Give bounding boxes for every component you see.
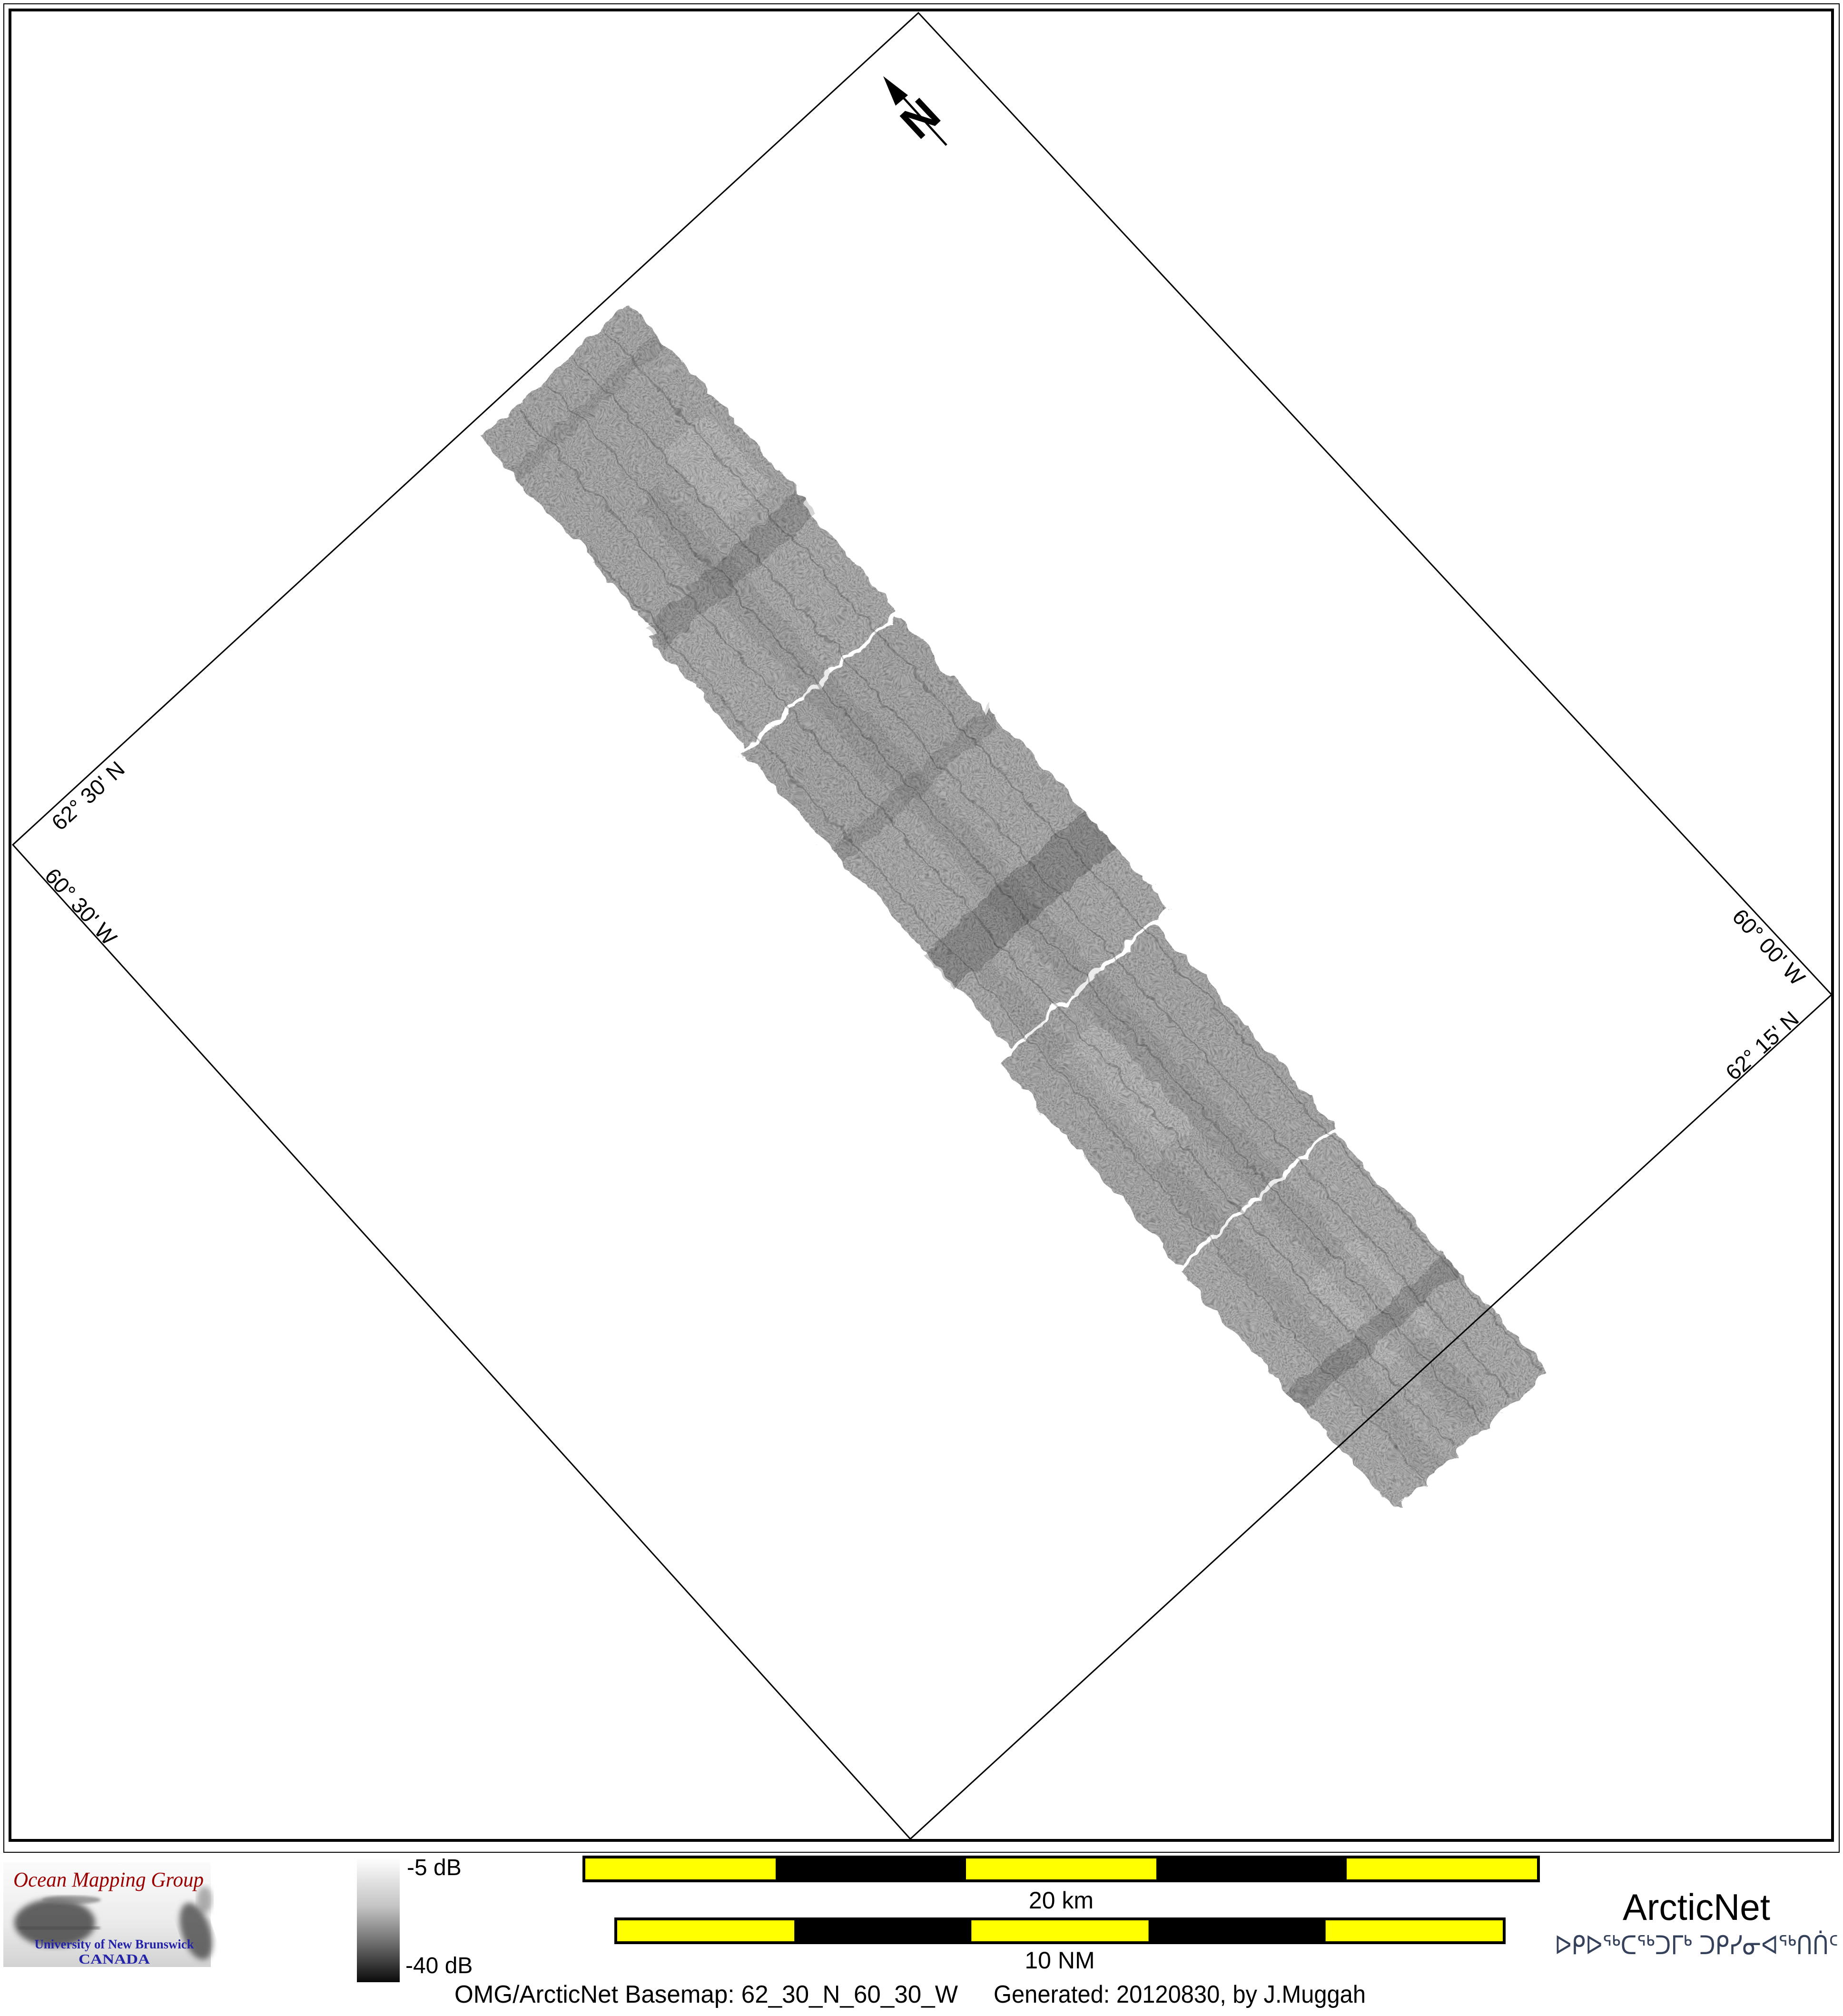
backscatter-colorbar: -5 dB -40 dB — [357, 1855, 473, 1982]
footer-caption: OMG/ArcticNet Basemap: 62_30_N_60_30_W G… — [454, 1981, 1366, 2008]
scalebar-km-segment — [776, 1858, 966, 1879]
scalebar-nm-segment — [971, 1920, 1148, 1941]
scalebar-nm-segment — [1326, 1920, 1503, 1941]
scalebar-km-segment — [966, 1858, 1156, 1879]
scalebar-nm-segment — [1149, 1920, 1326, 1941]
skid-icon — [19, 1927, 100, 1929]
basemap-figure: N 62° 30' N 60° 30' W 60° 00' W 62° 15' … — [0, 0, 1843, 2016]
scalebar-km-label: 20 km — [1029, 1887, 1094, 1914]
colorbar-gradient — [357, 1858, 400, 1982]
omg-logo-university: University of New Brunswick — [35, 1937, 194, 1951]
caption-basemap: OMG/ArcticNet Basemap: 62_30_N_60_30_W — [454, 1981, 958, 2008]
rotor-icon — [42, 1896, 101, 1904]
caption-generated: Generated: 20120830, by J.Muggah — [994, 1981, 1366, 2008]
scalebar-nm-label: 10 NM — [1025, 1947, 1094, 1974]
omg-logo-title: Ocean Mapping Group — [13, 1868, 204, 1891]
colorbar-min-label: -40 dB — [405, 1953, 473, 1978]
arcticnet-syllabics: ᐅᑭᐅᖅᑕᖅᑐᒥᒃ ᑐᑭᓯᓂᐊᖅᑎᑏᑦ — [1555, 1930, 1838, 1960]
omg-logo-country: CANADA — [79, 1952, 150, 1967]
scalebar-km-segment — [1347, 1858, 1537, 1879]
scalebar-km-segment — [1156, 1858, 1347, 1879]
arcticnet-name: ArcticNet — [1623, 1886, 1770, 1928]
scalebar-km-segment — [585, 1858, 776, 1879]
scalebar-nm: 10 NM — [616, 1919, 1504, 1974]
scalebar-km: 20 km — [584, 1857, 1538, 1914]
scalebar-nm-segment — [617, 1920, 794, 1941]
omg-logo: Ocean Mapping Group University of New Br… — [3, 1862, 219, 1967]
arcticnet-logo: ArcticNet ᐅᑭᐅᖅᑕᖅᑐᒥᒃ ᑐᑭᓯᓂᐊᖅᑎᑏᑦ — [1555, 1886, 1838, 1960]
colorbar-max-label: -5 dB — [407, 1855, 462, 1880]
scalebar-nm-segment — [794, 1920, 971, 1941]
